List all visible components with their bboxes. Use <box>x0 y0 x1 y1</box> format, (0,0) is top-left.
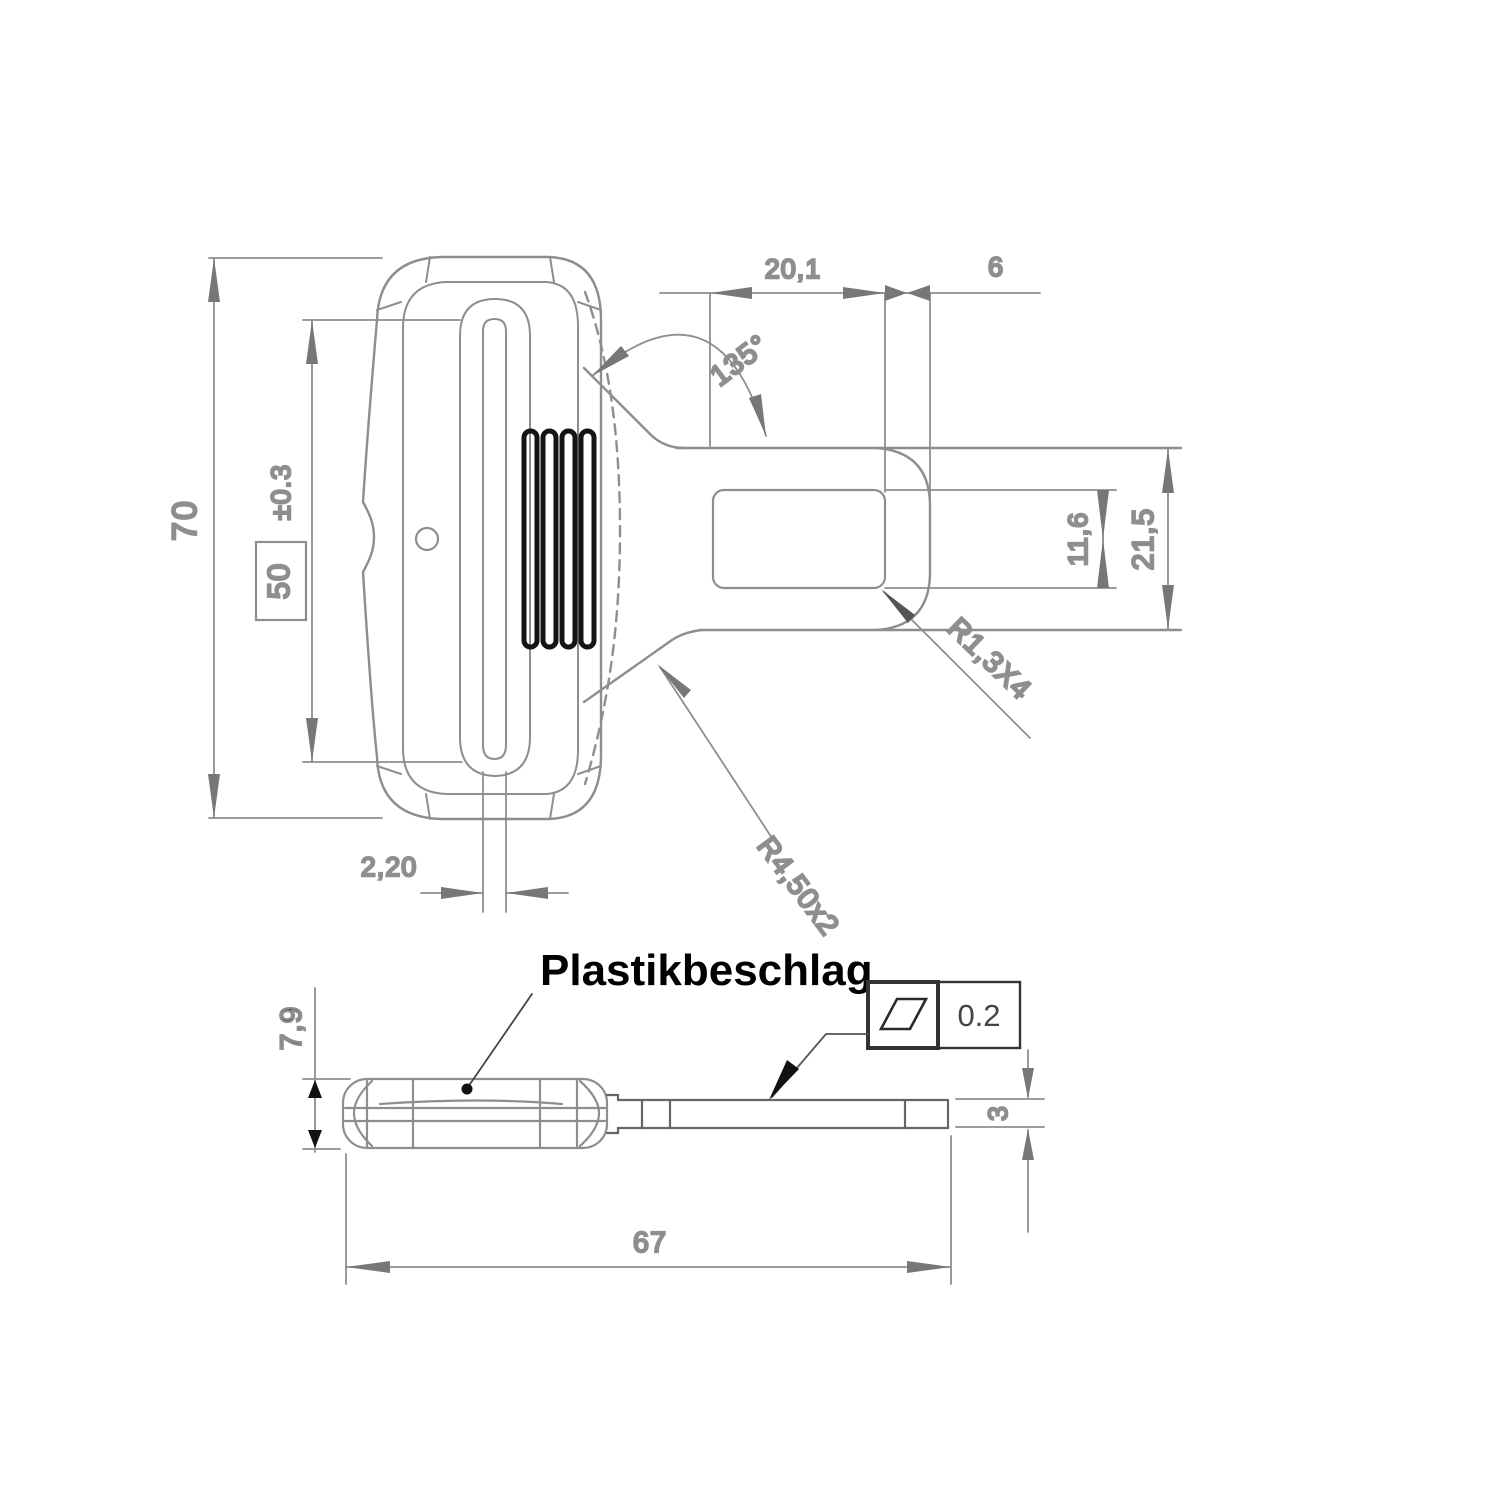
webbing-slot-outer <box>460 299 530 776</box>
dim-20-1-label: 20,1 <box>765 254 822 284</box>
grip-rib <box>543 431 556 647</box>
dim-50 <box>256 320 462 762</box>
drawing-canvas: 70 50 ±0.3 2,20 2 <box>0 0 1500 1500</box>
technical-drawing: 70 50 ±0.3 2,20 2 <box>0 0 1500 1500</box>
dim-20-1-and-6 <box>660 285 1040 505</box>
buckle-inner-outline <box>403 282 578 794</box>
dim-3 <box>956 1050 1044 1232</box>
parallelogram-icon <box>881 999 926 1029</box>
dim-135-label: 135° <box>704 329 774 393</box>
top-view: 70 50 ±0.3 2,20 2 <box>166 252 1181 942</box>
callout-r1-3-label: R1,3X4 <box>941 612 1037 706</box>
dim-21-5-label: 21,5 <box>1127 508 1160 570</box>
side-body-right-contour <box>580 1081 599 1146</box>
parting-ticks <box>377 257 601 819</box>
side-body-left-contour <box>354 1081 372 1146</box>
grip-ribs <box>524 431 594 647</box>
dim-67-label: 67 <box>633 1227 667 1259</box>
dim-70-label: 70 <box>166 499 204 541</box>
latch-slot <box>713 490 885 588</box>
dim-70 <box>208 258 382 818</box>
grip-rib <box>562 431 575 647</box>
dim-67 <box>346 1136 951 1284</box>
dim-11-6-label: 11,6 <box>1063 512 1093 567</box>
flatness-symbol-cell <box>868 982 938 1048</box>
flatness-leader-arrow <box>769 1060 799 1100</box>
dim-2-20-label: 2,20 <box>361 852 418 882</box>
side-tongue <box>607 1095 948 1133</box>
leader-dot <box>462 1084 473 1095</box>
dim-50-label: 50 <box>261 563 296 599</box>
pin-hole <box>416 528 438 550</box>
flatness-value: 0.2 <box>957 998 1000 1033</box>
callout-r4-50-label: R4,50x2 <box>750 831 845 942</box>
part-label: Plastikbeschlag <box>540 946 873 995</box>
webbing-slit <box>483 319 506 759</box>
grip-rib <box>581 431 594 647</box>
side-body-bulge <box>380 1101 562 1105</box>
dim-7-9-label: 7,9 <box>275 1006 308 1051</box>
dim-21-5 <box>1162 448 1174 630</box>
dim-3-label: 3 <box>983 1105 1013 1121</box>
dim-50-tolerance: ±0.3 <box>266 464 296 520</box>
dim-6-label: 6 <box>988 252 1004 282</box>
side-body-outline <box>343 1079 607 1148</box>
side-view: 7,9 Plastikbeschlag 0.2 3 <box>275 946 1044 1284</box>
callout-r4-50 <box>657 664 772 838</box>
